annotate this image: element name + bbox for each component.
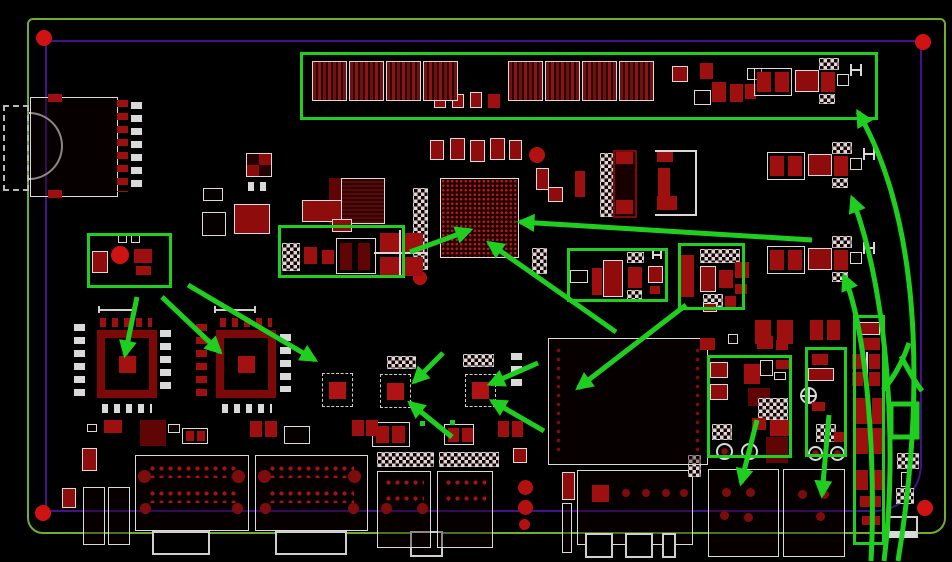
pcb-layout-canvas: 入口 — [0, 0, 952, 562]
annotation-box — [87, 233, 172, 288]
annotation-box — [300, 52, 878, 120]
annotation-box — [678, 243, 745, 310]
annotation-box — [853, 315, 885, 545]
annotation-layer — [0, 0, 952, 562]
annotation-box — [567, 248, 668, 302]
annotation-box — [805, 347, 847, 457]
annotation-box — [707, 355, 792, 458]
annotation-box — [278, 225, 405, 278]
entrance-label-text: 入口 — [884, 338, 924, 448]
